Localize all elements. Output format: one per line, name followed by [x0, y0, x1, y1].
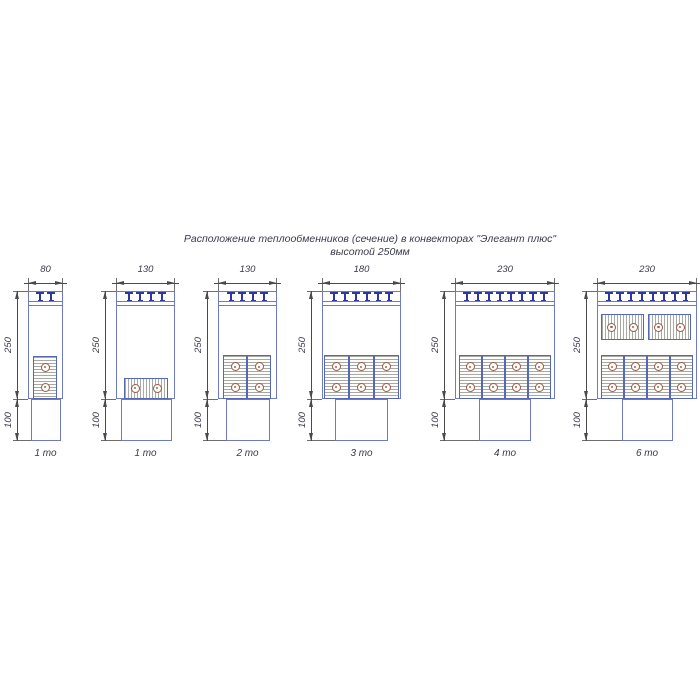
- width-dimension-line: [318, 283, 405, 284]
- dimension-arrow-down-icon: [205, 391, 209, 399]
- grille-line: [28, 305, 63, 306]
- convector-base: [335, 399, 388, 441]
- height-dimension-line: [444, 291, 445, 441]
- tube-circle: [357, 383, 366, 392]
- dimension-arrow-left-icon: [218, 281, 226, 285]
- base-height-dimension-label: 100: [298, 405, 308, 435]
- grille-bracket-icon: [263, 292, 265, 301]
- tube-circle: [535, 383, 544, 392]
- grille-bracket-icon: [543, 292, 545, 301]
- grille-bracket-icon: [477, 292, 479, 301]
- dimension-arrow-down-icon: [584, 433, 588, 441]
- grille-bracket-icon: [630, 292, 632, 301]
- dimension-arrow-right-icon: [393, 281, 401, 285]
- grille-bracket-icon: [241, 292, 243, 301]
- dimension-arrow-up-icon: [103, 291, 107, 299]
- grille-bracket-icon: [344, 292, 346, 301]
- grille-line: [455, 305, 555, 306]
- grille-bracket-icon: [521, 292, 523, 301]
- dimension-arrow-down-icon: [205, 433, 209, 441]
- grille-bracket-icon: [128, 292, 130, 301]
- tube-circle: [131, 384, 140, 393]
- convector-base: [121, 399, 172, 441]
- dimension-arrow-down-icon: [103, 391, 107, 399]
- tube-circle: [607, 323, 616, 332]
- exchanger-count-label: 4 то: [475, 449, 535, 459]
- dimension-arrow-up-icon: [309, 291, 313, 299]
- convector-base: [31, 399, 61, 441]
- grille-line: [597, 301, 697, 302]
- convector-base: [226, 399, 270, 441]
- body-height-dimension-label: 250: [431, 330, 441, 360]
- dimension-arrow-down-icon: [442, 433, 446, 441]
- grille-bracket-icon: [377, 292, 379, 301]
- width-dimension-line: [451, 283, 559, 284]
- dimension-arrow-right-icon: [269, 281, 277, 285]
- grille-bracket-icon: [466, 292, 468, 301]
- base-height-dimension-label: 100: [194, 405, 204, 435]
- grille-bracket-icon: [50, 292, 52, 301]
- grille-bracket-icon: [366, 292, 368, 301]
- grille-line: [597, 305, 697, 306]
- dimension-arrow-up-icon: [584, 291, 588, 299]
- dimension-arrow-right-icon: [547, 281, 555, 285]
- tube-circle: [41, 383, 50, 392]
- grille-bracket-icon: [139, 292, 141, 301]
- width-dimension-line: [593, 283, 700, 284]
- technical-drawing-canvas: Расположение теплообменников (сечение) в…: [0, 0, 700, 700]
- tube-circle: [631, 383, 640, 392]
- drawing-title-line1: Расположение теплообменников (сечение) в…: [35, 233, 700, 246]
- dimension-arrow-up-icon: [15, 291, 19, 299]
- dimension-arrow-down-icon: [103, 433, 107, 441]
- tube-circle: [629, 323, 638, 332]
- grille-line: [218, 305, 277, 306]
- exchanger-count-label: 6 то: [617, 449, 677, 459]
- exchanger-count-label: 1 то: [116, 449, 176, 459]
- dimension-arrow-left-icon: [597, 281, 605, 285]
- width-dimension-label: 130: [126, 265, 166, 275]
- grille-bracket-icon: [388, 292, 390, 301]
- dimension-arrow-left-icon: [322, 281, 330, 285]
- grille-bracket-icon: [685, 292, 687, 301]
- dimension-arrow-up-icon: [584, 399, 588, 407]
- exchanger-count-label: 3 то: [332, 449, 392, 459]
- body-height-dimension-label: 250: [194, 330, 204, 360]
- grille-bracket-icon: [161, 292, 163, 301]
- grille-line: [218, 301, 277, 302]
- width-dimension-label: 130: [228, 265, 268, 275]
- height-dimension-line: [586, 291, 587, 441]
- grille-bracket-icon: [333, 292, 335, 301]
- tube-circle: [608, 383, 617, 392]
- dimension-arrow-right-icon: [55, 281, 63, 285]
- grille-bracket-icon: [499, 292, 501, 301]
- grille-bracket-icon: [150, 292, 152, 301]
- dimension-arrow-down-icon: [584, 391, 588, 399]
- dimension-arrow-left-icon: [455, 281, 463, 285]
- base-height-dimension-label: 100: [431, 405, 441, 435]
- dimension-arrow-up-icon: [205, 291, 209, 299]
- convector-base: [622, 399, 673, 441]
- grille-line: [455, 301, 555, 302]
- drawing-title: Расположение теплообменников (сечение) в…: [35, 233, 700, 259]
- dimension-arrow-up-icon: [15, 399, 19, 407]
- grille-bracket-icon: [355, 292, 357, 301]
- tube-circle: [382, 383, 391, 392]
- tube-circle: [231, 362, 240, 371]
- grille-bracket-icon: [252, 292, 254, 301]
- tube-circle: [466, 383, 475, 392]
- grille-line: [322, 305, 401, 306]
- tube-circle: [512, 383, 521, 392]
- grille-bracket-icon: [510, 292, 512, 301]
- grille-bracket-icon: [39, 292, 41, 301]
- tube-circle: [332, 383, 341, 392]
- grille-bracket-icon: [652, 292, 654, 301]
- dimension-arrow-left-icon: [28, 281, 36, 285]
- base-height-dimension-label: 100: [573, 405, 583, 435]
- grille-line: [116, 305, 175, 306]
- tube-circle: [676, 323, 685, 332]
- width-dimension-label: 180: [342, 265, 382, 275]
- dimension-arrow-down-icon: [309, 391, 313, 399]
- grille-bracket-icon: [488, 292, 490, 301]
- dimension-arrow-down-icon: [15, 391, 19, 399]
- tube-circle: [153, 384, 162, 393]
- dimension-arrow-up-icon: [103, 399, 107, 407]
- grille-bracket-icon: [619, 292, 621, 301]
- dimension-arrow-left-icon: [116, 281, 124, 285]
- dimension-arrow-right-icon: [167, 281, 175, 285]
- dimension-arrow-up-icon: [442, 399, 446, 407]
- dimension-arrow-right-icon: [689, 281, 697, 285]
- body-height-dimension-label: 250: [573, 330, 583, 360]
- tube-circle: [255, 383, 264, 392]
- grille-bracket-icon: [674, 292, 676, 301]
- grille-line: [322, 301, 401, 302]
- body-height-dimension-label: 250: [4, 330, 14, 360]
- grille-line: [116, 301, 175, 302]
- dimension-arrow-up-icon: [442, 291, 446, 299]
- tube-circle: [231, 383, 240, 392]
- body-height-dimension-label: 250: [298, 330, 308, 360]
- height-dimension-line: [311, 291, 312, 441]
- grille-bracket-icon: [608, 292, 610, 301]
- grille-bracket-icon: [663, 292, 665, 301]
- base-height-dimension-label: 100: [4, 405, 14, 435]
- base-height-dimension-label: 100: [92, 405, 102, 435]
- width-dimension-label: 230: [485, 265, 525, 275]
- exchanger-count-label: 1 то: [16, 449, 76, 459]
- dimension-arrow-up-icon: [205, 399, 209, 407]
- dimension-arrow-down-icon: [15, 433, 19, 441]
- grille-line: [28, 301, 63, 302]
- height-extension-line: [582, 440, 622, 441]
- dimension-arrow-down-icon: [442, 391, 446, 399]
- tube-circle: [677, 383, 686, 392]
- height-dimension-line: [17, 291, 18, 441]
- height-dimension-line: [105, 291, 106, 441]
- tube-circle: [489, 383, 498, 392]
- tube-circle: [255, 362, 264, 371]
- width-dimension-label: 80: [26, 265, 66, 275]
- grille-bracket-icon: [641, 292, 643, 301]
- height-dimension-line: [207, 291, 208, 441]
- width-dimension-label: 230: [627, 265, 667, 275]
- tube-circle: [654, 323, 663, 332]
- grille-bracket-icon: [230, 292, 232, 301]
- body-height-dimension-label: 250: [92, 330, 102, 360]
- dimension-arrow-down-icon: [309, 433, 313, 441]
- convector-base: [479, 399, 531, 441]
- tube-circle: [654, 383, 663, 392]
- exchanger-count-label: 2 то: [218, 449, 278, 459]
- dimension-arrow-up-icon: [309, 399, 313, 407]
- tube-circle: [41, 363, 50, 372]
- drawing-title-line2: высотой 250мм: [35, 246, 700, 259]
- grille-bracket-icon: [532, 292, 534, 301]
